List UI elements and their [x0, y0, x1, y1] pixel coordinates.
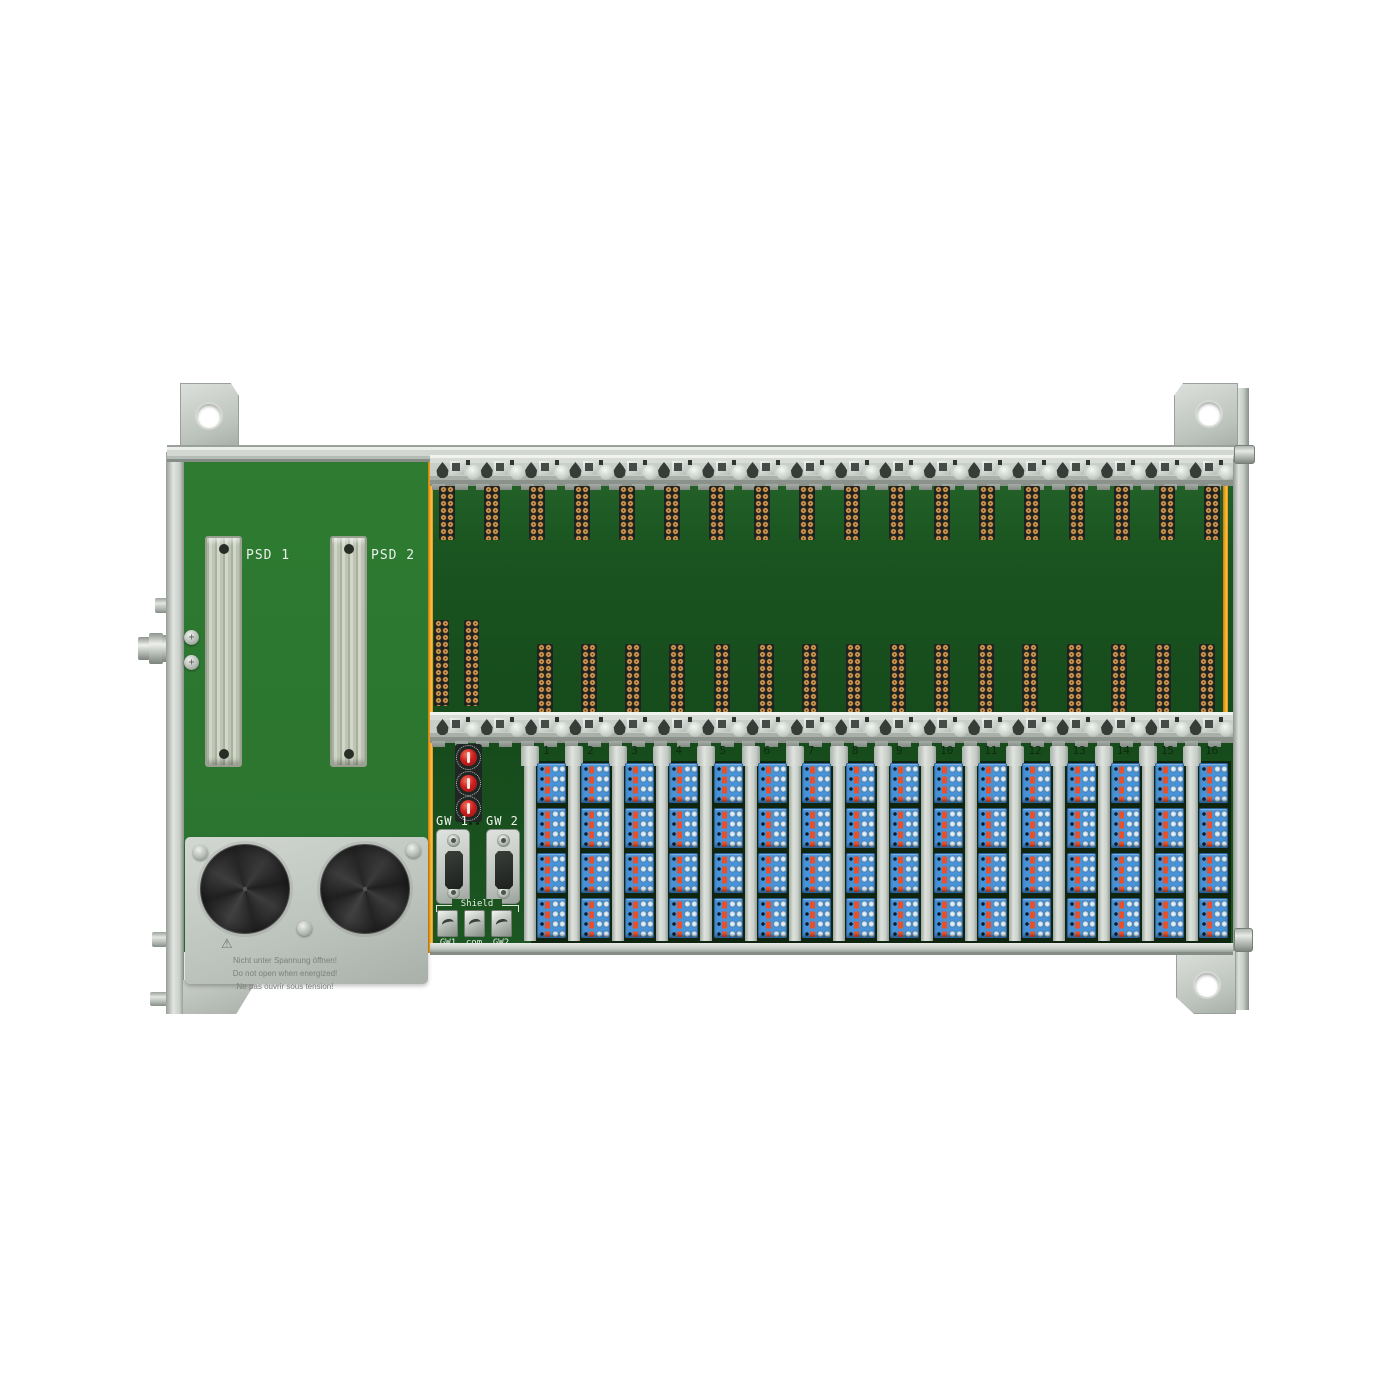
carrier-strip [965, 764, 977, 941]
pad-column-mid [1155, 644, 1171, 712]
terminal-block [581, 853, 610, 893]
rail-foot [1097, 484, 1110, 490]
carrier-strip [568, 764, 580, 941]
carrier-strip [656, 764, 668, 941]
terminal-block [846, 853, 875, 893]
vent-disc [200, 844, 290, 934]
rail-foot [1052, 484, 1065, 490]
pad-column-top [1069, 486, 1085, 540]
din-rail [430, 455, 1233, 486]
channel-number: 15 [1161, 744, 1185, 758]
vent-cover-plate: ⚠ Nicht unter Spannung öffnen! Do not op… [185, 837, 428, 984]
terminal-block [934, 898, 963, 938]
terminal-column [625, 763, 654, 939]
rail-clip [789, 458, 834, 482]
rail-clip [612, 715, 657, 739]
shield-terminal-gw2 [491, 910, 512, 937]
channel-number: 12 [1028, 744, 1052, 758]
pad-column-top [709, 486, 725, 540]
mounting-hole [197, 404, 221, 428]
rail-clip [745, 458, 790, 482]
terminal-column [1111, 763, 1140, 939]
channel-number: 14 [1117, 744, 1141, 758]
gw2-dsub-connector [486, 829, 520, 904]
warning-triangle-icon: ⚠ [221, 937, 233, 952]
rail-clip [435, 715, 480, 739]
psd2-label: PSD 2 [371, 548, 415, 563]
carrier-strip [745, 764, 757, 941]
terminal-block [537, 763, 566, 803]
terminal-block [714, 763, 743, 803]
left-side-panel [166, 452, 184, 1014]
pad-column-top [934, 486, 950, 540]
pad-column-mid [846, 644, 862, 712]
rail-clip [524, 458, 569, 482]
channel-number: 2 [587, 744, 611, 758]
pad-column-top [1114, 486, 1130, 540]
terminal-block [714, 898, 743, 938]
mounting-bracket-top-left [180, 383, 239, 447]
rail-clip [701, 458, 746, 482]
terminal-block [1022, 808, 1051, 848]
terminal-block [625, 808, 654, 848]
pad-column-top [754, 486, 770, 540]
channel-number: 8 [852, 744, 876, 758]
carrier-strip [1053, 764, 1065, 941]
pad-column-mid [978, 644, 994, 712]
terminal-block [669, 763, 698, 803]
terminal-block [1155, 853, 1184, 893]
pcb-screw: + [184, 655, 199, 670]
bottom-edge-shadow [430, 952, 1233, 955]
terminal-column [714, 763, 743, 939]
pad-column-top [619, 486, 635, 540]
rail-clip [435, 458, 480, 482]
rail-foot [432, 741, 445, 747]
pad-column-mid [714, 644, 730, 712]
gw2-label: GW 2 [486, 814, 519, 828]
rail-clip [745, 715, 790, 739]
terminal-block [758, 808, 787, 848]
pad-column-mid [802, 644, 818, 712]
channel-number: 1 [543, 744, 567, 758]
terminal-column [846, 763, 875, 939]
rail-clip [568, 458, 613, 482]
terminal-column [669, 763, 698, 939]
rail-clip [1144, 458, 1189, 482]
terminal-column [978, 763, 1007, 939]
terminal-block [802, 808, 831, 848]
psd1-connector [205, 536, 242, 767]
terminal-block [934, 808, 963, 848]
terminal-block [1155, 898, 1184, 938]
rail-clip [1188, 715, 1233, 739]
side-screw [150, 992, 167, 1006]
rail-foot [831, 484, 844, 490]
carrier-strip [877, 764, 889, 941]
rotary-address-switches [455, 744, 482, 822]
psd2-connector [330, 536, 367, 767]
terminal-block [802, 853, 831, 893]
terminal-block [537, 853, 566, 893]
pcb-edge-right [1223, 462, 1228, 743]
terminal-block [669, 898, 698, 938]
terminal-column [758, 763, 787, 939]
rail-foot [544, 484, 557, 490]
rail-clip [524, 715, 569, 739]
terminal-column [802, 763, 831, 939]
rail-foot [875, 484, 888, 490]
rail-foot [919, 484, 932, 490]
rail-clip [834, 458, 879, 482]
right-side-rail [1233, 388, 1249, 1010]
pad-column-mid [625, 644, 641, 712]
terminal-block [890, 898, 919, 938]
pad-column-top [1204, 486, 1220, 540]
terminal-block [1067, 763, 1096, 803]
mounting-hole [1195, 973, 1219, 997]
pad-column-top [1024, 486, 1040, 540]
channel-number: 13 [1073, 744, 1097, 758]
pad-column-mid [1111, 644, 1127, 712]
pad-column-top [844, 486, 860, 540]
terminal-block [758, 763, 787, 803]
terminal-block [1155, 763, 1184, 803]
terminal-block [1199, 763, 1228, 803]
rail-clip [612, 458, 657, 482]
terminal-block [846, 763, 875, 803]
rail-clip [922, 715, 967, 739]
terminal-block [846, 898, 875, 938]
terminal-block [1155, 808, 1184, 848]
cover-screw [406, 843, 421, 858]
mounting-hole [1197, 402, 1221, 426]
pad-column-mid [758, 644, 774, 712]
edge-screw [1234, 445, 1255, 464]
terminal-block [890, 853, 919, 893]
warning-text-de: Nicht unter Spannung öffnen! [185, 954, 385, 967]
terminal-block [890, 808, 919, 848]
terminal-block [1199, 808, 1228, 848]
terminal-block [537, 808, 566, 848]
carrier-strip [1009, 764, 1021, 941]
terminal-block [1022, 853, 1051, 893]
rail-clip [878, 715, 923, 739]
pad-column-top [574, 486, 590, 540]
rail-clip [922, 458, 967, 482]
rail-clip [967, 458, 1012, 482]
cover-screw [297, 921, 312, 936]
pcb-edge-left [428, 462, 433, 953]
pad-column-mid [537, 644, 553, 712]
terminal-block [1067, 808, 1096, 848]
carrier-strip [1142, 764, 1154, 941]
terminal-block [625, 853, 654, 893]
rail-foot [964, 484, 977, 490]
gw1-dsub-connector [436, 829, 470, 904]
terminal-block [1111, 853, 1140, 893]
terminal-block [934, 853, 963, 893]
vent-disc [320, 844, 410, 934]
rotary-dial [460, 775, 477, 792]
terminal-column [537, 763, 566, 939]
terminal-block [978, 808, 1007, 848]
pad-column-top [529, 486, 545, 540]
shield-label: Shield [452, 899, 502, 909]
shield-terminal-gw1 [437, 910, 458, 937]
rail-clip [657, 458, 702, 482]
mounting-bracket-bottom-right [1176, 950, 1236, 1014]
pad-column-top [664, 486, 680, 540]
warning-text-en: Do not open when energized! [185, 967, 385, 980]
terminal-block [581, 898, 610, 938]
carrier-strip [700, 764, 712, 941]
din-rail [430, 712, 1233, 743]
terminal-block [1199, 898, 1228, 938]
rail-foot [455, 484, 468, 490]
edge-screw [1234, 928, 1253, 952]
rotary-dial [460, 749, 477, 766]
channel-number: 3 [631, 744, 655, 758]
terminal-block [934, 763, 963, 803]
rail-foot [1008, 484, 1021, 490]
channel-number: 7 [808, 744, 832, 758]
mounting-bracket-top-right [1174, 383, 1238, 447]
terminal-block [978, 898, 1007, 938]
shield-terminal-com [464, 910, 485, 937]
pad-column-top [979, 486, 995, 540]
terminal-column [1199, 763, 1228, 939]
rail-clip [789, 715, 834, 739]
pad-column-top [799, 486, 815, 540]
rail-clip [479, 458, 524, 482]
terminal-block [714, 853, 743, 893]
dsub-insert [495, 851, 513, 889]
terminal-block [625, 763, 654, 803]
rail-clip [479, 715, 524, 739]
terminal-block [758, 853, 787, 893]
pad-column-top [439, 486, 455, 540]
rail-clip [1055, 715, 1100, 739]
terminal-block [581, 808, 610, 848]
carrier-strip [1186, 764, 1198, 941]
terminal-block [669, 853, 698, 893]
terminal-block [846, 808, 875, 848]
gw1-label: GW 1 [436, 814, 469, 828]
terminal-block [1111, 763, 1140, 803]
carrier-strip [524, 764, 536, 941]
terminal-block [978, 763, 1007, 803]
channel-number: 5 [720, 744, 744, 758]
channel-number: 10 [940, 744, 964, 758]
terminal-column [1155, 763, 1184, 939]
rail-foot [786, 484, 799, 490]
rail-clip [1011, 715, 1056, 739]
pad-column-mid [581, 644, 597, 712]
pad-column-mid [1022, 644, 1038, 712]
pcb-screw: + [184, 630, 199, 645]
rail-clip [1144, 715, 1189, 739]
pad-column-mid [934, 644, 950, 712]
carrier-strip [789, 764, 801, 941]
pad-column-mid [1067, 644, 1083, 712]
product-photo-backplane-module: PSD 1 PSD 2 + + 12345678910111213141516 … [0, 0, 1400, 1400]
carrier-strip [921, 764, 933, 941]
rail-clip [1100, 458, 1145, 482]
terminal-block [669, 808, 698, 848]
side-screw [152, 932, 167, 947]
rail-clip [967, 715, 1012, 739]
terminal-block [978, 853, 1007, 893]
terminal-block [537, 898, 566, 938]
rail-clip [657, 715, 702, 739]
rail-clip [1011, 458, 1056, 482]
terminal-block [758, 898, 787, 938]
terminal-column [581, 763, 610, 939]
channel-number: 6 [764, 744, 788, 758]
terminal-block [1067, 898, 1096, 938]
terminal-block [1111, 808, 1140, 848]
bottom-chassis-edge [430, 943, 1233, 952]
rail-foot [499, 484, 512, 490]
terminal-block [1199, 853, 1228, 893]
terminal-block [714, 808, 743, 848]
terminal-column [934, 763, 963, 939]
rail-foot [499, 741, 512, 747]
rail-clip [834, 715, 879, 739]
rail-clip [1188, 458, 1233, 482]
pad-column-top [1159, 486, 1175, 540]
rail-clip [568, 715, 613, 739]
pad-column-mid [669, 644, 685, 712]
pad-column-aux [464, 620, 479, 706]
terminal-block [802, 763, 831, 803]
rail-foot [1185, 484, 1198, 490]
pad-column-top [484, 486, 500, 540]
terminal-column [1022, 763, 1051, 939]
channel-number: 16 [1205, 744, 1229, 758]
carrier-strip [833, 764, 845, 941]
channel-number: 11 [984, 744, 1008, 758]
pad-column-mid [890, 644, 906, 712]
terminal-block [1022, 763, 1051, 803]
rail-clip [1100, 715, 1145, 739]
terminal-column [1067, 763, 1096, 939]
terminal-block [802, 898, 831, 938]
warning-text-fr: Ne pas ouvrir sous tension! [185, 980, 385, 993]
terminal-block [1067, 853, 1096, 893]
rail-clip [701, 715, 746, 739]
terminal-block [1111, 898, 1140, 938]
terminal-block [625, 898, 654, 938]
carrier-strip [1098, 764, 1110, 941]
pad-column-top [889, 486, 905, 540]
carrier-strip [612, 764, 624, 941]
dsub-insert [445, 851, 463, 889]
psd1-label: PSD 1 [246, 548, 290, 563]
terminal-column [890, 763, 919, 939]
channel-number: 4 [675, 744, 699, 758]
cover-screw [193, 845, 208, 860]
terminal-block [890, 763, 919, 803]
pad-column-aux [434, 620, 449, 706]
pad-column-mid [1199, 644, 1215, 712]
rail-foot [1141, 484, 1154, 490]
rail-clip [1055, 458, 1100, 482]
rail-clip [878, 458, 923, 482]
terminal-block [581, 763, 610, 803]
channel-number: 9 [896, 744, 920, 758]
terminal-block [1022, 898, 1051, 938]
